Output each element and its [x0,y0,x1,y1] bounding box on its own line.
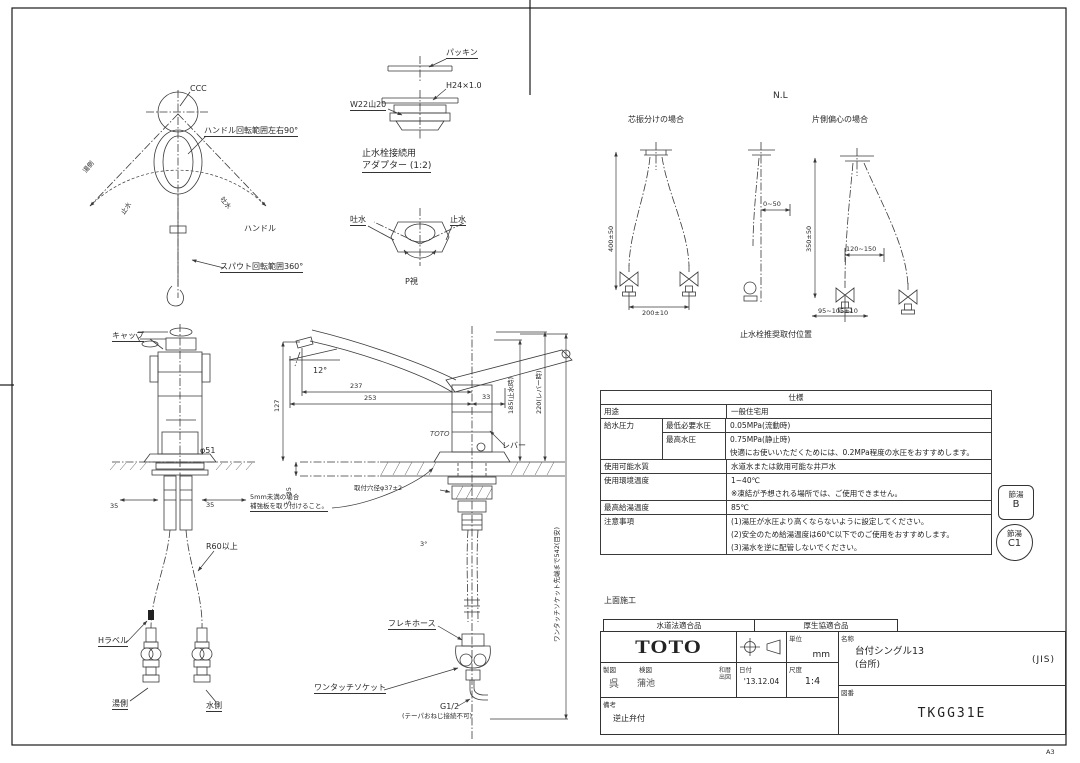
era-issue-note: 和暦出図 [719,667,732,681]
name-label: 名称 [841,633,854,643]
check-stamp: 蒲池 [637,676,655,689]
dim-237: 237 [350,383,362,390]
dim-left-35: 35 [110,503,118,510]
dim-height-left: 400±50 [608,226,615,252]
date-cell: 日付 '13.12.04 [736,662,787,698]
case-offset-title: 片側偏心の場合 [812,115,868,124]
top-view-linework [90,90,266,306]
spec-use-value: 一般住宅用 [727,405,991,418]
socket-reach-dim: ワンタッチソケット先端まで542(目安) [554,527,561,642]
spec-env-value: 1~40℃ [731,474,991,487]
dim-height-right: 350±50 [806,226,813,252]
toto-logo: TOTO [601,634,736,660]
diameter-label: φ51 [200,446,215,455]
r60-label: R60以上 [206,542,238,551]
g-thread-note: (テーパおねじ接続不可) [402,713,472,720]
reference-line-label: N.L [773,91,788,101]
height-stop-dim: 185(止水時) [508,377,515,414]
thread-side-label: W22山20 [350,100,386,111]
draft-label: 製図 [603,664,616,674]
dim-span-right: 120~150 [846,246,876,253]
eco-badge-c1: 節湯 C1 [996,524,1033,561]
remarks-value: 逆止弁付 [613,713,645,724]
spec-quality-value: 水道水または飲用可能な井戸水 [727,460,991,473]
eco-badge-b-value: B [999,499,1033,510]
packing-label: パッキン [446,48,478,59]
spec-min-pressure-label: 最低必要水圧 [663,419,726,432]
logo-cell: TOTO [600,631,737,663]
stop-valve-position-caption: 止水栓推奨取付位置 [740,330,812,339]
one-touch-socket-label: ワンタッチソケット [314,683,386,694]
spec-pressure-spacer [663,446,726,459]
dim-33: 33 [482,394,490,401]
draft-stamp: 呉 [609,675,619,690]
projection-symbol-icon [737,632,786,662]
cap-label: キャップ [112,331,144,342]
side-view-linework [283,326,572,740]
top-view-ccc-label: CCC [190,84,207,93]
spec-hot-value: 85℃ [727,501,991,514]
adapter-close-label: 止水 [450,215,466,226]
date-value: '13.12.04 [737,677,786,686]
front-view-linework [110,324,256,702]
spec-max-pressure-value: 0.75MPa(静止時) [726,433,991,446]
spec-use-label: 用途 [601,405,727,418]
brand-mark-label: TOTO [430,430,450,438]
drawing-number-label: 図番 [841,687,854,697]
dim-right-35: 35 [206,502,214,509]
spec-caution-3: (3)湯水を逆に配管しないでください。 [731,541,991,554]
date-label: 日付 [739,664,752,674]
adapter-title-line2: アダプター (1:2) [362,161,431,173]
unit-label: 単位 [789,633,802,643]
spec-caution-1: (1)湯圧が水圧より高くならないように設定してください。 [731,515,991,528]
tilt-label: 3° [420,541,427,548]
spec-quality-row: 使用可能水質 水道水または飲用可能な井戸水 [601,460,991,474]
spec-table: 仕様 用途 一般住宅用 給水圧力 最低必要水圧 0.05MPa(流動時) 最高水… [600,390,992,555]
dim-pitch-right: 95~105±10 [818,308,858,315]
handle-label: ハンドル [244,224,276,233]
spec-hot-label: 最高給湯温度 [601,501,727,514]
dim-127: 127 [274,400,281,412]
spec-pressure-note: 快適にお使いいただくためには、0.2MPa程度の水圧をおすすめします。 [726,446,991,459]
projection-cell [736,631,787,663]
dim-pitch-left: 200±10 [642,310,668,317]
g-thread-label: G1/2 [440,702,459,711]
eco-badge-b-label: 節湯 [999,490,1033,499]
spec-title: 仕様 [601,391,991,404]
dim-offset: 0~50 [763,201,781,208]
height-lever-dim: 220(レバー時) [536,371,543,414]
handle-rotation-range-label: ハンドル回転範囲左右90° [204,126,298,137]
adapter-open-label: 吐水 [350,215,366,226]
unit-cell: 単位 mm [786,631,839,663]
spec-caution-2: (2)安全のため給湯温度は60℃以下でのご使用をおすすめします。 [731,528,991,541]
spec-quality-label: 使用可能水質 [601,460,727,473]
adapter-title-line1: 止水栓接続用 [362,149,416,159]
signature-cell: 製図 検図 呉 蒲池 和暦出図 [600,662,737,698]
dim-253: 253 [364,395,376,402]
scale-cell: 尺度 1:4 [786,662,839,698]
remarks-cell: 備考 逆止弁付 [600,697,839,735]
eco-badge-b: 節湯 B [998,485,1034,520]
spec-caution-label: 注意事項 [601,515,727,554]
spec-min-pressure-value: 0.05MPa(流動時) [726,419,991,432]
name-cell: 名称 台付シングル13 (台所) (JIS) [838,631,1066,686]
case-split-title: 芯振分けの場合 [628,115,684,124]
spec-env-label: 使用環境温度 [601,474,727,500]
spout-angle-label: 12° [313,366,327,375]
spec-pressure-label: 給水圧力 [601,419,663,459]
counter-thickness-dim: 5~35 [286,487,293,505]
product-name-line1: 台付シングル13 [855,643,924,657]
flex-hose-label: フレキホース [388,619,436,630]
installation-linework [616,142,917,322]
spec-title-row: 仕様 [601,391,991,405]
sheet-size-marker: A3 [1046,749,1055,756]
lever-label: レバー [502,441,526,450]
drawing-number-value: TKGG31E [839,706,1065,721]
scale-label: 尺度 [789,664,802,674]
mount-note: 上面施工 [604,596,636,605]
p-view-label: P視 [405,277,418,286]
spec-max-pressure-label: 最高水圧 [663,433,726,446]
unit-value: mm [812,650,830,660]
hot-side-label: 湯側 [112,699,128,710]
spec-hot-row: 最高給湯温度 85℃ [601,501,991,515]
mounting-hole-label: 取付穴径φ37±2 [354,485,402,492]
cold-side-label: 水側 [206,701,222,712]
drawing-number-cell: 図番 TKGG31E [838,685,1066,735]
remarks-label: 備考 [603,699,616,709]
scale-value: 1:4 [787,676,838,687]
spout-rotation-range-label: スパウト回転範囲360° [220,262,303,273]
spec-use-row: 用途 一般住宅用 [601,405,991,419]
spec-env-row: 使用環境温度 1~40℃ ※凍結が予想される場所では、ご使用できません。 [601,474,991,501]
spec-env-note: ※凍結が予想される場所では、ご使用できません。 [731,487,991,500]
eco-badge-c1-label: 節湯 [997,529,1032,538]
drawing-sheet: { "page": { "marker": "A3" }, "top_view"… [0,0,1080,763]
product-name-line2: (台所) [855,657,880,670]
eco-badge-c1-value: C1 [997,538,1032,549]
thread-top-label: H24×1.0 [446,81,482,90]
name-tag: (JIS) [1032,655,1055,665]
spec-pressure-row: 給水圧力 最低必要水圧 0.05MPa(流動時) 最高水圧 0.75MPa(静止… [601,419,991,460]
h-label: Hラベル [98,636,128,647]
check-label: 検図 [639,664,652,674]
spec-caution-row: 注意事項 (1)湯圧が水圧より高くならないように設定してください。 (2)安全の… [601,515,991,554]
